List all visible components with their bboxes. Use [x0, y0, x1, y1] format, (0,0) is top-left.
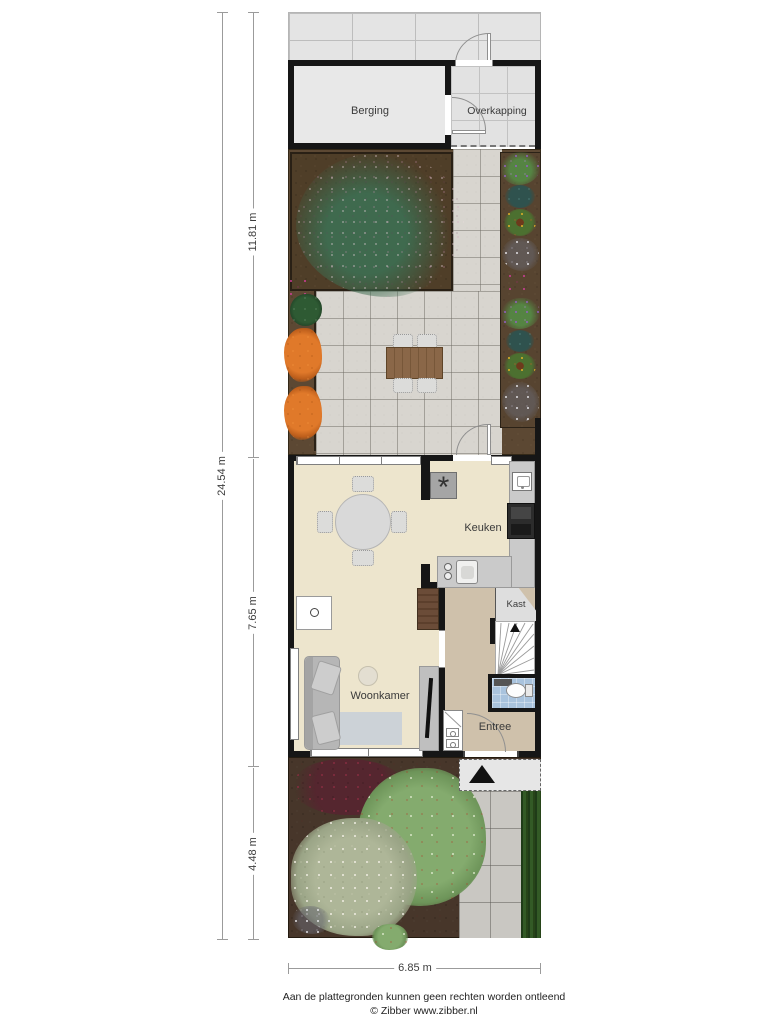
dim-tick: [217, 939, 228, 940]
toilet-tank: [525, 684, 533, 697]
berging-overkapping-door-gap: [445, 95, 451, 135]
pouf: [358, 666, 378, 686]
dining-chair-bottom: [352, 550, 374, 566]
floorplan-page: Berging Overkapping: [0, 0, 768, 1024]
dim-label-back: 11.81 m: [246, 209, 260, 256]
faucet-icon: [443, 562, 453, 580]
dim-tick: [540, 963, 541, 974]
dim-tick: [248, 939, 259, 940]
dim-label-house: 7.65 m: [246, 592, 260, 634]
garden-table: [386, 347, 443, 379]
room-label-kast: Kast: [497, 599, 535, 610]
door-leaf-back-door: [487, 424, 491, 455]
white-speckle-plants: [292, 906, 330, 934]
small-shrub-bottom: [372, 924, 408, 950]
dim-tick: [288, 963, 289, 974]
flowers-magenta-1: [505, 271, 535, 298]
flowers-teal-1: [505, 185, 535, 208]
dim-tick: [217, 12, 228, 13]
window-top-left: [296, 456, 421, 465]
room-label-berging: Berging: [330, 105, 410, 117]
flowers-silver-2: [502, 382, 539, 422]
dim-label-total: 24.54 m: [215, 452, 229, 500]
house-wall-right: [535, 455, 541, 757]
disclaimer: Aan de plattegronden kunnen geen rechten…: [130, 990, 718, 1018]
flowers-teal-2: [506, 330, 534, 352]
tall-cabinet-wood: [417, 588, 439, 630]
dim-label-width: 6.85 m: [394, 961, 436, 975]
sofa: [304, 656, 340, 750]
room-label-overkapping: Overkapping: [453, 105, 541, 117]
dim-label-front: 4.48 m: [246, 833, 260, 875]
back-door-gap: [453, 455, 491, 461]
hedge-strip: [521, 791, 541, 938]
disclaimer-line1: Aan de plattegronden kunnen geen rechten…: [130, 990, 718, 1004]
bathroom-wall-bottom: [488, 708, 535, 712]
garden-chair-4: [417, 378, 437, 393]
entree-cabinet: [443, 710, 463, 751]
door-leaf-berging-overkapping: [452, 130, 486, 134]
ventilation-icon: *: [430, 472, 457, 499]
room-label-keuken: Keuken: [443, 522, 523, 534]
glass-door-living-hall: [439, 630, 445, 668]
berging-wall-left: [288, 60, 294, 149]
dining-chair-left: [317, 511, 333, 533]
orange-bush-1: [284, 328, 322, 382]
dim-tick: [248, 457, 259, 458]
disclaimer-line2: © Zibber www.zibber.nl: [130, 1004, 718, 1018]
toilet-icon: [506, 683, 526, 698]
entrance-arrow-icon: [469, 765, 495, 783]
garden-chair-3: [393, 378, 413, 393]
room-label-entree: Entree: [465, 721, 525, 733]
flowers-ring-2: [504, 353, 536, 379]
stairs-arrow-icon: [510, 623, 520, 632]
dining-chair-top: [352, 476, 374, 492]
round-dining-table: [335, 494, 391, 550]
back-alley-paving: [288, 12, 541, 66]
fireplace-unit: [296, 596, 332, 630]
window-left-wall: [290, 648, 299, 740]
flowers-ring-1: [504, 209, 536, 236]
sink-icon: [512, 472, 532, 491]
sink2-icon: [456, 560, 478, 584]
rug: [338, 712, 402, 745]
wall-stub-kitchen-top: [421, 461, 430, 500]
overkapping-top-door-gap: [455, 60, 493, 66]
dim-tick: [248, 12, 259, 13]
berging-wall-top: [288, 60, 451, 66]
flowers-silver-1: [502, 238, 539, 271]
garden-right-wall-stub: [535, 418, 541, 455]
orange-bush-2: [284, 386, 322, 440]
dining-chair-right: [391, 511, 407, 533]
room-label-woonkamer: Woonkamer: [340, 690, 420, 702]
dim-tick: [248, 766, 259, 767]
